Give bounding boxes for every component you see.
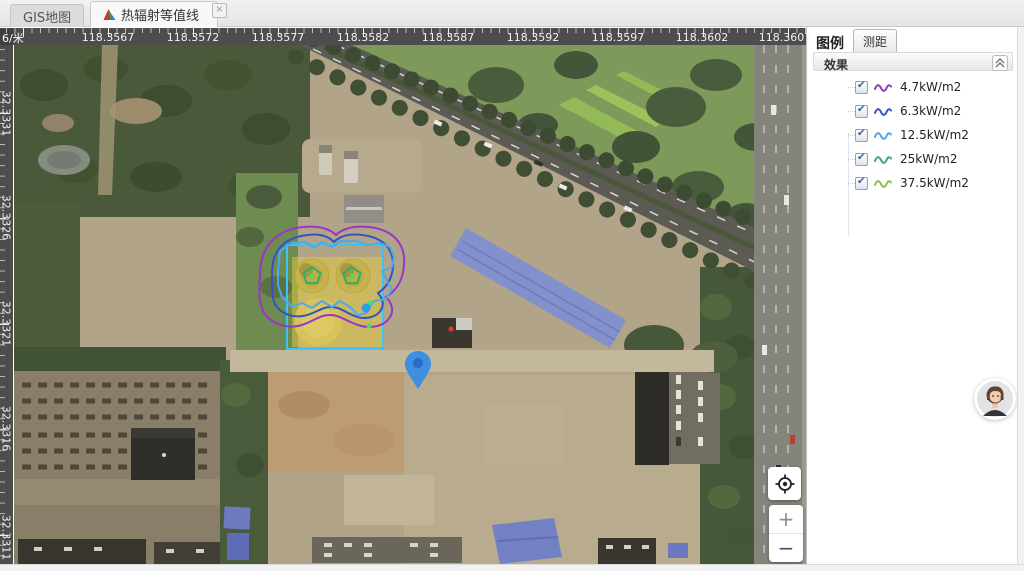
longitude-label: 118.3592 bbox=[507, 31, 560, 44]
longitude-label: 118.3572 bbox=[167, 31, 220, 44]
wave-line-icon bbox=[874, 81, 894, 94]
longitude-label: 118.3602 bbox=[676, 31, 729, 44]
assistant-avatar[interactable] bbox=[974, 378, 1016, 420]
wave-line-icon bbox=[874, 177, 894, 190]
horizontal-scrollbar[interactable] bbox=[0, 564, 1024, 571]
checkbox-12-5kw[interactable] bbox=[855, 129, 868, 142]
legend-item-4-7kw: 4.7kW/m2 bbox=[807, 75, 1017, 99]
zoom-in-button[interactable]: + bbox=[769, 505, 803, 533]
legend-label: 25kW/m2 bbox=[900, 152, 957, 166]
zoom-out-button[interactable]: − bbox=[769, 533, 803, 562]
legend-title: 图例 bbox=[816, 33, 844, 53]
map-scale-label: 6/米 bbox=[2, 30, 24, 46]
longitude-label: 118.3582 bbox=[337, 31, 390, 44]
effects-section-header: 效果 bbox=[813, 52, 1013, 71]
longitude-ruler: 118.3567 118.3572 118.3577 118.3582 118.… bbox=[0, 28, 806, 45]
legend-item-12-5kw: 12.5kW/m2 bbox=[807, 123, 1017, 147]
longitude-label: 118.3567 bbox=[82, 31, 135, 44]
latitude-label: 32.3326 bbox=[0, 189, 13, 247]
legend-sidebar: 图例 测距 效果 4.7kW/m2 bbox=[806, 27, 1017, 565]
checkbox-4-7kw[interactable] bbox=[855, 81, 868, 94]
tab-label: 热辐射等值线 bbox=[121, 5, 199, 24]
checkbox-6-3kw[interactable] bbox=[855, 105, 868, 118]
wave-line-icon bbox=[874, 153, 894, 166]
legend-label: 4.7kW/m2 bbox=[900, 80, 961, 94]
measure-distance-button[interactable]: 测距 bbox=[853, 29, 897, 54]
latitude-label: 32.3321 bbox=[0, 295, 13, 353]
crosshair-icon bbox=[775, 474, 795, 494]
collapse-icon[interactable] bbox=[992, 55, 1008, 71]
tab-label: GIS地图 bbox=[23, 7, 71, 26]
effects-section-title: 效果 bbox=[824, 56, 848, 73]
wave-line-icon bbox=[874, 105, 894, 118]
gis-app-window: GIS地图 热辐射等值线 × bbox=[0, 0, 1024, 571]
avatar-icon bbox=[976, 380, 1014, 418]
legend-label: 6.3kW/m2 bbox=[900, 104, 961, 118]
wave-line-icon bbox=[874, 129, 894, 142]
legend-label: 37.5kW/m2 bbox=[900, 176, 969, 190]
blue-point bbox=[362, 304, 371, 313]
legend-label: 12.5kW/m2 bbox=[900, 128, 969, 142]
checkbox-25kw[interactable] bbox=[855, 153, 868, 166]
latitude-label: 32.3311 bbox=[0, 509, 13, 566]
longitude-label: 118.3587 bbox=[422, 31, 475, 44]
longitude-label: 118.3597 bbox=[592, 31, 645, 44]
legend-item-6-3kw: 6.3kW/m2 bbox=[807, 99, 1017, 123]
legend-item-25kw: 25kW/m2 bbox=[807, 147, 1017, 171]
latitude-ruler: 32.3331 32.3326 32.3321 32.3316 32.3311 bbox=[0, 28, 13, 565]
legend-item-37-5kw: 37.5kW/m2 bbox=[807, 171, 1017, 195]
zoom-control: + − bbox=[769, 505, 803, 562]
longitude-label: 118.3577 bbox=[252, 31, 305, 44]
legend-list: 4.7kW/m2 6.3kW/m2 12.5kW/m2 bbox=[807, 75, 1017, 195]
latitude-label: 32.3316 bbox=[0, 400, 13, 458]
satellite-map[interactable] bbox=[14, 45, 806, 565]
tab-thermal-isolines[interactable]: 热辐射等值线 bbox=[90, 1, 218, 27]
close-tab-icon[interactable]: × bbox=[212, 3, 227, 18]
terrain bbox=[14, 45, 806, 565]
latitude-label: 32.3331 bbox=[0, 85, 13, 143]
longitude-label: 118.3607 bbox=[759, 31, 812, 44]
vertical-scrollbar[interactable] bbox=[1017, 27, 1024, 564]
tab-bar: GIS地图 热辐射等值线 × bbox=[0, 0, 1024, 27]
locate-button[interactable] bbox=[768, 467, 801, 500]
tab-gis-map[interactable]: GIS地图 bbox=[10, 4, 84, 27]
checkbox-37-5kw[interactable] bbox=[855, 177, 868, 190]
chart-icon bbox=[103, 8, 116, 21]
